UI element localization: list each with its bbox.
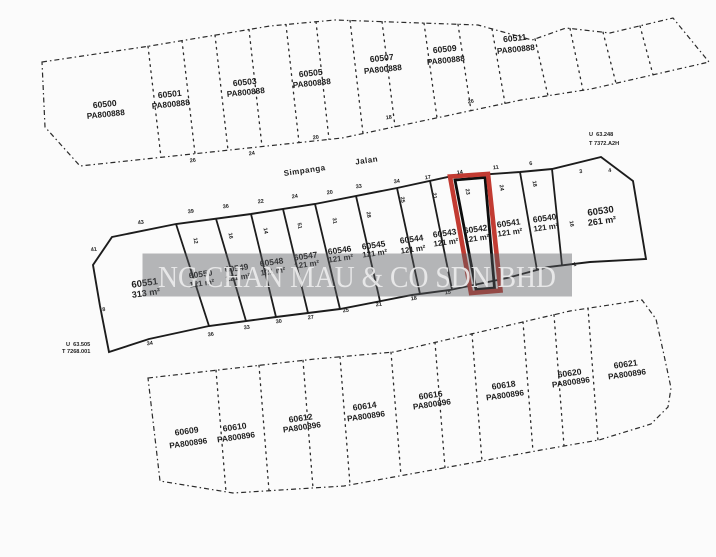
svg-text:30: 30	[275, 319, 282, 326]
svg-text:26: 26	[189, 158, 196, 165]
svg-text:20: 20	[312, 135, 319, 142]
svg-text:16: 16	[567, 220, 574, 227]
svg-text:33: 33	[355, 184, 362, 191]
svg-text:11: 11	[493, 165, 500, 172]
svg-text:41: 41	[90, 247, 97, 254]
svg-text:U 63.248: U 63.248	[589, 132, 613, 138]
svg-text:12: 12	[191, 237, 198, 244]
svg-text:18: 18	[385, 115, 392, 122]
svg-text:36: 36	[207, 332, 214, 339]
svg-text:33: 33	[243, 325, 250, 332]
svg-text:27: 27	[307, 315, 314, 322]
svg-text:51: 51	[295, 222, 302, 229]
svg-text:20: 20	[326, 190, 333, 197]
svg-text:43: 43	[137, 220, 144, 227]
svg-text:U 63.505: U 63.505	[66, 342, 90, 348]
svg-text:36: 36	[222, 204, 229, 211]
svg-text:T 7372.A2H: T 7372.A2H	[589, 141, 619, 147]
svg-text:NG CHAN MAU & CO SDN BHD: NG CHAN MAU & CO SDN BHD	[158, 259, 556, 294]
svg-text:25: 25	[398, 196, 405, 203]
svg-text:21: 21	[430, 192, 437, 199]
svg-text:31: 31	[330, 217, 337, 224]
svg-text:39: 39	[187, 209, 194, 216]
svg-text:23: 23	[463, 188, 470, 195]
svg-text:T 7268.001: T 7268.001	[62, 349, 90, 355]
svg-text:17: 17	[424, 175, 431, 182]
svg-text:26: 26	[467, 99, 474, 106]
svg-text:22: 22	[257, 199, 264, 206]
svg-text:18: 18	[530, 180, 537, 187]
svg-text:25: 25	[342, 308, 349, 315]
svg-text:16: 16	[226, 232, 233, 239]
svg-text:21: 21	[375, 302, 382, 309]
svg-text:18: 18	[410, 296, 417, 303]
svg-text:28: 28	[364, 211, 371, 218]
